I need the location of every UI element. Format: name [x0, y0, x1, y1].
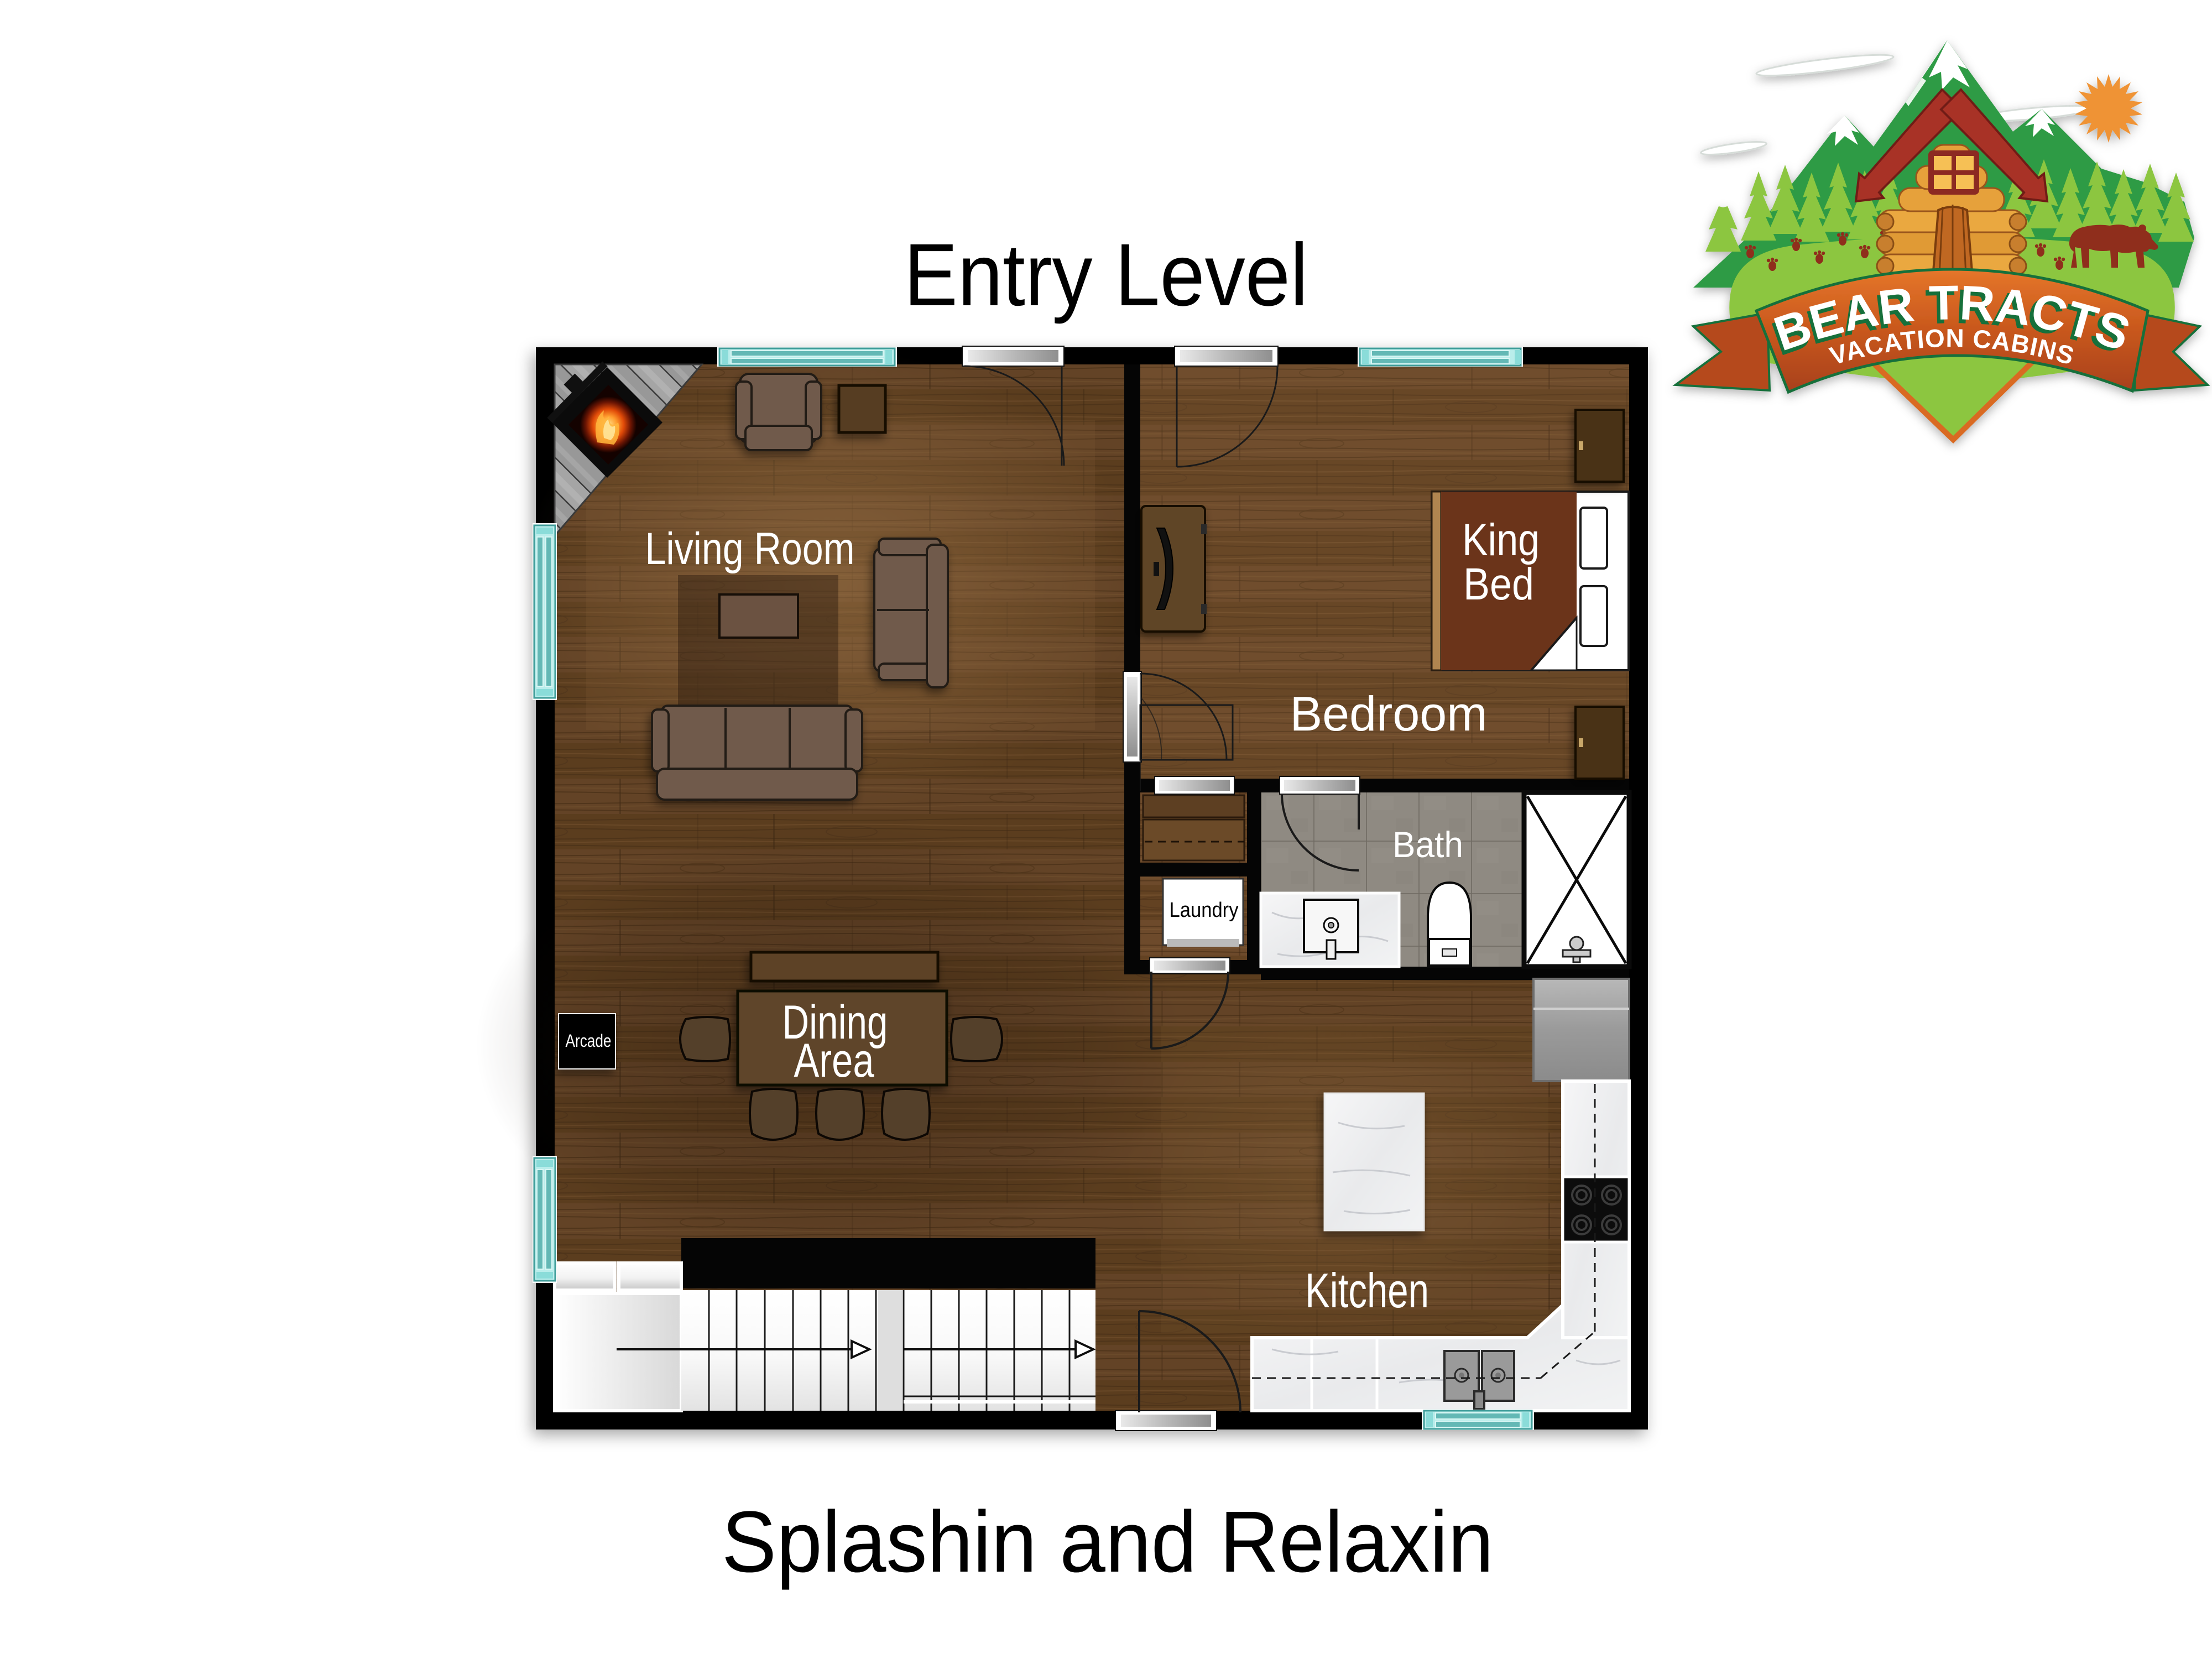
svg-text:King: King	[1462, 515, 1540, 565]
svg-text:Area: Area	[794, 1034, 874, 1087]
svg-text:Splashin and Relaxin: Splashin and Relaxin	[722, 1494, 1494, 1590]
svg-text:Kitchen: Kitchen	[1305, 1263, 1429, 1318]
svg-text:Bath: Bath	[1392, 824, 1463, 865]
svg-text:Bed: Bed	[1463, 559, 1534, 609]
svg-text:Laundry: Laundry	[1170, 899, 1239, 922]
svg-text:Arcade: Arcade	[566, 1031, 612, 1051]
svg-text:Living Room: Living Room	[645, 524, 855, 574]
svg-text:Bedroom: Bedroom	[1290, 686, 1488, 741]
svg-text:Entry Level: Entry Level	[904, 225, 1308, 324]
